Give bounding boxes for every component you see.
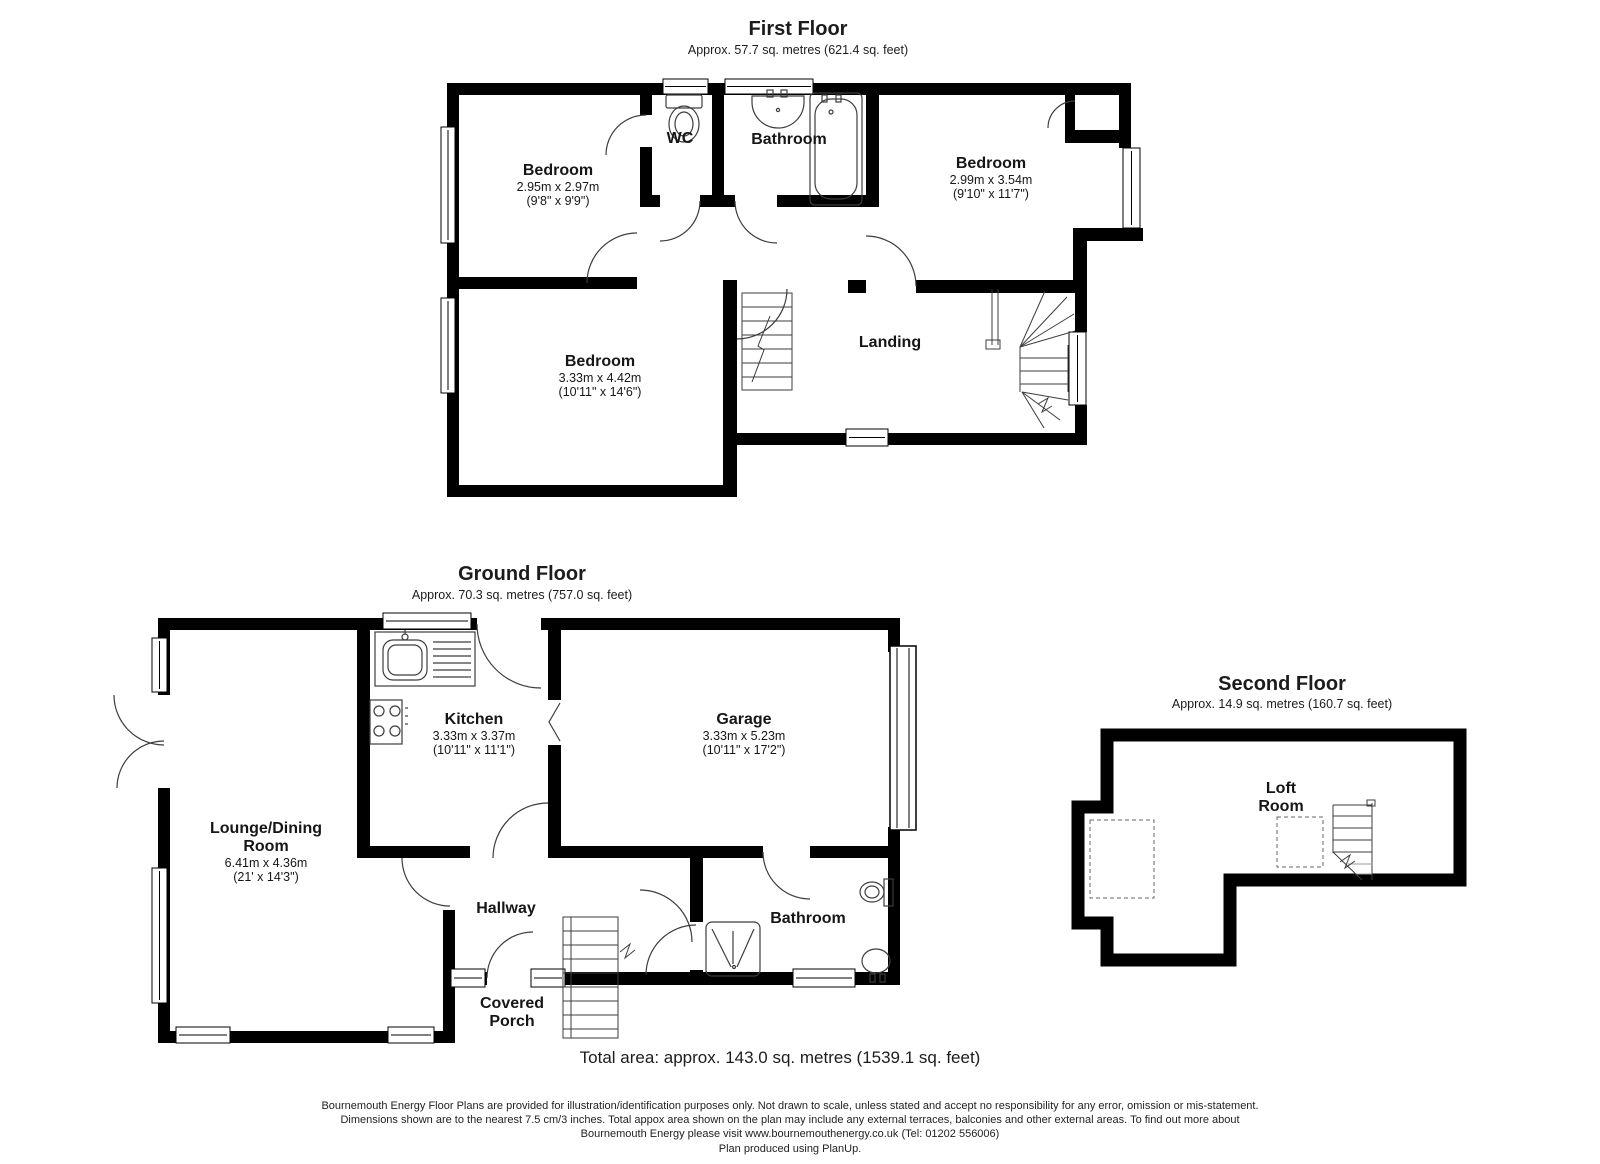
room-name-line2: Room — [210, 838, 322, 856]
basin-fixture — [752, 90, 804, 128]
door-arc — [763, 852, 810, 899]
kitchen-sink-unit — [375, 630, 475, 686]
door-arc — [587, 233, 637, 283]
disclaimer-line-4: Plan produced using PlanUp. — [719, 1143, 861, 1155]
door-arc — [646, 925, 696, 975]
bathtub-fixture — [810, 93, 862, 205]
room-dimensions-imperial: (10'11" x 11'1") — [433, 743, 516, 757]
room-label-sf-loft: Loft Room — [1258, 780, 1303, 816]
room-name-line1: Lounge/Dining — [210, 820, 322, 838]
room-dimensions-metric: 3.33m x 4.42m — [559, 371, 642, 385]
room-name: Bedroom — [517, 162, 600, 180]
french-door-arc — [117, 741, 164, 788]
second-floor-subtitle: Approx. 14.9 sq. metres (160.7 sq. feet) — [1172, 697, 1392, 711]
room-label-gf-kitchen: Kitchen 3.33m x 3.37m (10'11" x 11'1") — [433, 711, 516, 757]
room-label-ff-bedroom-bottom: Bedroom 3.33m x 4.42m (10'11" x 14'6") — [559, 353, 642, 399]
room-dimensions-metric: 3.33m x 3.37m — [433, 729, 516, 743]
room-name: Garage — [703, 711, 786, 729]
disclaimer-line-3: Bournemouth Energy please visit www.bour… — [581, 1128, 1000, 1140]
room-label-ff-landing: Landing — [859, 334, 921, 352]
ground-floor-subtitle: Approx. 70.3 sq. metres (757.0 sq. feet) — [412, 588, 632, 602]
ground-floor-title: Ground Floor — [458, 563, 586, 585]
room-dimensions-metric: 2.99m x 3.54m — [950, 173, 1033, 187]
floorplan-page: { "floors": { "first": {"title": "First … — [0, 0, 1600, 1164]
room-dimensions-metric: 2.95m x 2.97m — [517, 180, 600, 194]
door-arc — [493, 803, 548, 858]
room-label-gf-hallway: Hallway — [476, 900, 536, 918]
room-label-ff-wc: WC — [667, 130, 694, 148]
first-floor-stairs — [742, 293, 792, 390]
disclaimer-line-2: Dimensions shown are to the nearest 7.5 … — [340, 1114, 1239, 1126]
room-label-ff-bedroom-right: Bedroom 2.99m x 3.54m (9'10" x 11'7") — [950, 155, 1033, 201]
room-name: Bedroom — [559, 353, 642, 371]
french-door-arc — [114, 695, 164, 745]
room-label-gf-lounge: Lounge/Dining Room 6.41m x 4.36m (21' x … — [210, 820, 322, 884]
room-name-line1: Loft — [1258, 780, 1303, 798]
door-arc — [866, 236, 916, 286]
hob-fixture — [370, 700, 408, 744]
door-arc — [660, 201, 700, 241]
room-name-line2: Room — [1258, 798, 1303, 816]
first-floor-title: First Floor — [749, 18, 848, 40]
second-floor-plan — [1078, 735, 1460, 960]
room-label-ff-bathroom: Bathroom — [751, 131, 827, 149]
door-arc — [477, 624, 541, 688]
door-arc — [735, 201, 777, 243]
disclaimer-line-1: Bournemouth Energy Floor Plans are provi… — [321, 1100, 1258, 1112]
second-floor-title: Second Floor — [1218, 673, 1346, 695]
front-door-arc — [487, 932, 533, 978]
room-dimensions-metric: 3.33m x 5.23m — [703, 729, 786, 743]
room-dimensions-imperial: (21' x 14'3") — [210, 870, 322, 884]
room-label-gf-porch: Covered Porch — [480, 995, 544, 1031]
garage-door — [890, 646, 916, 830]
loft-outline-walls — [1078, 735, 1460, 960]
room-label-ff-bedroom-left: Bedroom 2.95m x 2.97m (9'8" x 9'9") — [517, 162, 600, 208]
floorplan-drawing — [0, 0, 1600, 1164]
room-label-gf-garage: Garage 3.33m x 5.23m (10'11" x 17'2") — [703, 711, 786, 757]
door-arc — [737, 289, 787, 339]
room-name: Kitchen — [433, 711, 516, 729]
room-dimensions-imperial: (9'10" x 11'7") — [950, 187, 1033, 201]
first-floor-door-arcs — [587, 101, 1075, 339]
room-dimensions-imperial: (9'8" x 9'9") — [517, 194, 600, 208]
room-name: Bedroom — [950, 155, 1033, 173]
room-label-gf-bathroom: Bathroom — [770, 910, 846, 928]
wall-opening-symbol — [549, 703, 560, 741]
room-name-line2: Porch — [480, 1013, 544, 1031]
room-dimensions-metric: 6.41m x 4.36m — [210, 856, 322, 870]
room-name-line1: Covered — [480, 995, 544, 1013]
landing-winder-stairs — [986, 289, 1075, 428]
room-dimensions-imperial: (10'11" x 17'2") — [703, 743, 786, 757]
shower-fixture — [706, 922, 760, 976]
room-dimensions-imperial: (10'11" x 14'6") — [559, 385, 642, 399]
total-area-text: Total area: approx. 143.0 sq. metres (15… — [580, 1048, 981, 1067]
door-arc — [402, 858, 450, 906]
first-floor-subtitle: Approx. 57.7 sq. metres (621.4 sq. feet) — [688, 43, 908, 57]
